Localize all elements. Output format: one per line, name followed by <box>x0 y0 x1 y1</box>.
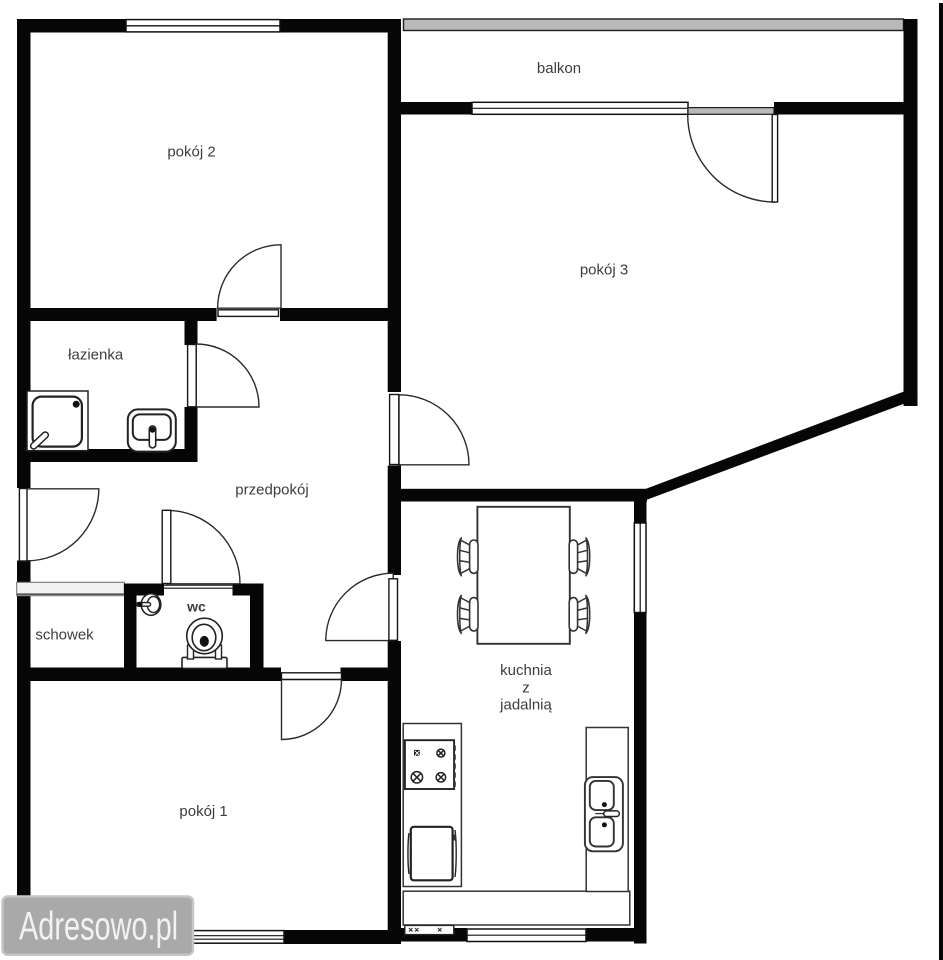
svg-text:schowek: schowek <box>35 627 94 644</box>
svg-text:balkon: balkon <box>537 60 581 77</box>
svg-text:pokój 2: pokój 2 <box>167 144 215 161</box>
svg-text:z: z <box>522 680 530 697</box>
svg-text:pokój 3: pokój 3 <box>580 262 628 279</box>
svg-text:przedpokój: przedpokój <box>235 482 308 499</box>
svg-text:wc: wc <box>186 599 206 615</box>
svg-text:jadalnią: jadalnią <box>499 697 552 714</box>
svg-text:kuchnia: kuchnia <box>500 662 552 679</box>
svg-text:pokój 1: pokój 1 <box>179 803 227 820</box>
svg-text:łazienka: łazienka <box>68 347 124 364</box>
svg-text:Adresowo.pl: Adresowo.pl <box>19 905 178 948</box>
